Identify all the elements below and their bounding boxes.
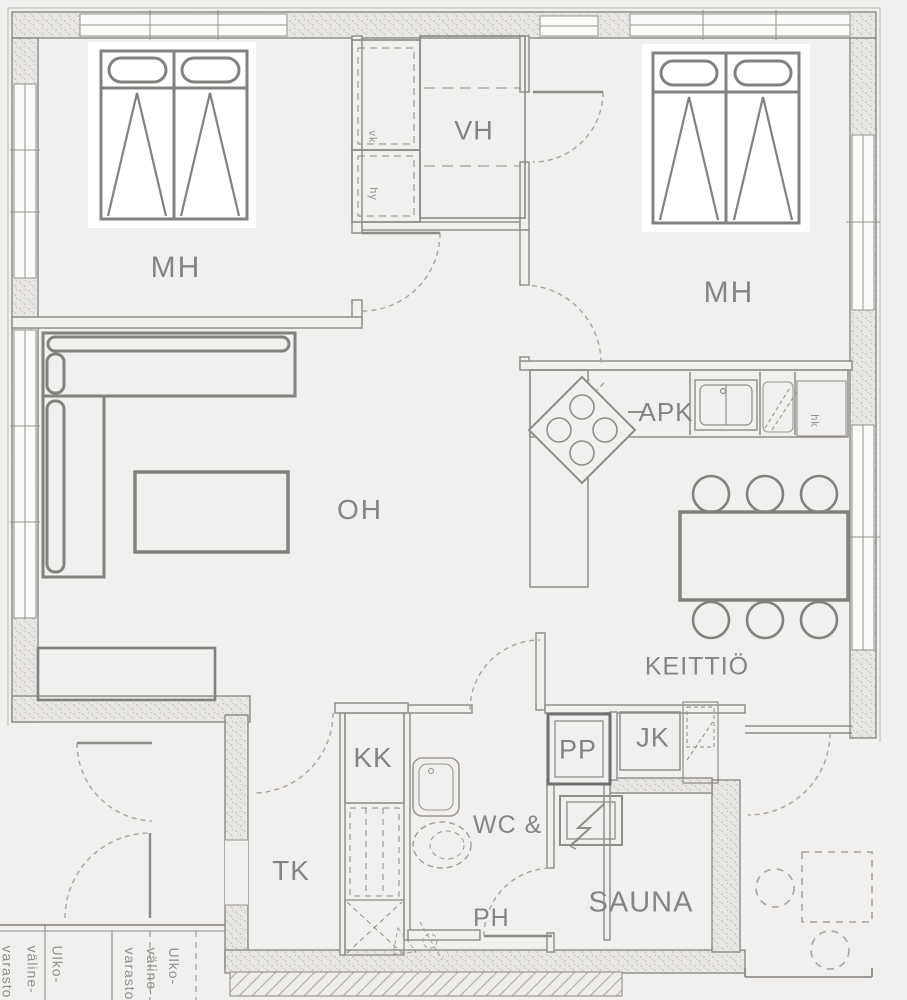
wall-tk-kk (340, 713, 345, 955)
terrace (230, 852, 872, 996)
room-label-wc-ph: WC & PH (473, 748, 542, 965)
sauna-stove (560, 796, 622, 849)
window (540, 16, 598, 36)
terrace-table (802, 852, 872, 922)
room-label-mh-right: MH (704, 278, 755, 308)
wall-wc-north (408, 705, 472, 713)
stove (529, 377, 635, 483)
deck-strip (230, 972, 622, 996)
dining-set (680, 476, 848, 638)
door-arc-vh (533, 92, 603, 162)
wc-line1: WC & (473, 810, 542, 841)
label-storage: Ulko- väline- varasto (119, 948, 185, 1000)
wall-kk-wc (404, 713, 410, 940)
storage-word-2: väline- (20, 946, 45, 999)
window (10, 330, 40, 618)
room-label-keittio: KEITTIÖ (645, 655, 749, 680)
wall-niche-bottom (610, 778, 712, 793)
dishwasher (763, 382, 798, 432)
room-label-tk: TK (272, 857, 310, 885)
window (10, 84, 40, 278)
tv-stand (38, 648, 215, 700)
cabinet-hk (797, 381, 846, 436)
terrace-door-wall (745, 726, 852, 733)
dining-chair (801, 476, 837, 512)
wall-mh-left-south (12, 317, 362, 328)
coffee-table (135, 472, 288, 552)
door-arc-tk (253, 713, 333, 793)
label-hk: hk (808, 414, 820, 428)
door-arc-mh-right (523, 285, 601, 363)
storage-word-1: Ulko- (163, 948, 185, 1000)
wall-mh-right-south (520, 361, 852, 370)
window (80, 10, 287, 40)
label-apk: APK (638, 399, 693, 425)
dining-chair (747, 602, 783, 638)
label-vk: vk (366, 131, 378, 144)
door-arc-mh-left (362, 233, 440, 311)
door-arc-porch-b (65, 833, 150, 918)
door-arc-terrace (748, 733, 830, 815)
sofa (43, 333, 295, 577)
label-pp: PP (559, 737, 597, 764)
terrace-chair (756, 869, 794, 907)
entry-door-opening (225, 840, 248, 905)
terrace-chair (811, 931, 849, 969)
room-label-kk: KK (353, 744, 392, 772)
wall-corridor-stub (536, 633, 545, 710)
dining-chair (693, 476, 729, 512)
wc-line2: PH (473, 903, 542, 934)
wall-tk-north (335, 703, 408, 713)
wall-sauna-west-a (547, 780, 554, 868)
bed-right (642, 44, 810, 232)
door-arc-porch-a (77, 743, 152, 821)
door-arc-wc (470, 640, 540, 710)
room-label-mh-left: MH (151, 253, 202, 283)
toilet (413, 822, 471, 868)
window (630, 10, 850, 40)
label-hy: hy (367, 187, 379, 201)
label-jk: JK (636, 725, 670, 752)
wall-sauna-right (712, 780, 740, 952)
washbasin (413, 758, 459, 816)
closet-hy-inner (358, 156, 414, 216)
storage-word-3: varasto (0, 946, 20, 999)
dining-chair (747, 476, 783, 512)
storage-word-3: varasto (119, 948, 141, 1000)
wall-mh-left-east (352, 36, 362, 233)
sink (695, 380, 757, 430)
room-label-sauna: SAUNA (589, 889, 694, 918)
wall-wc-south (408, 930, 480, 940)
dining-chair (693, 602, 729, 638)
storage-word-1: Ulko- (45, 946, 70, 999)
wall-hall-north (362, 222, 520, 230)
room-label-oh: OH (337, 496, 383, 524)
room-label-vh: VH (454, 118, 494, 145)
storage-word-2: väline- (141, 948, 163, 1000)
floorplan-drawing (0, 0, 907, 1000)
floorplan: MH VH MH APK OH KEITTIÖ KK WC & PH PP JK… (0, 0, 907, 1000)
label-storage-left: Ulko- väline- varasto (0, 946, 70, 999)
bed-left (88, 42, 256, 228)
dining-table (680, 512, 848, 600)
wall-hall-east-a (520, 230, 529, 285)
dining-chair (801, 602, 837, 638)
